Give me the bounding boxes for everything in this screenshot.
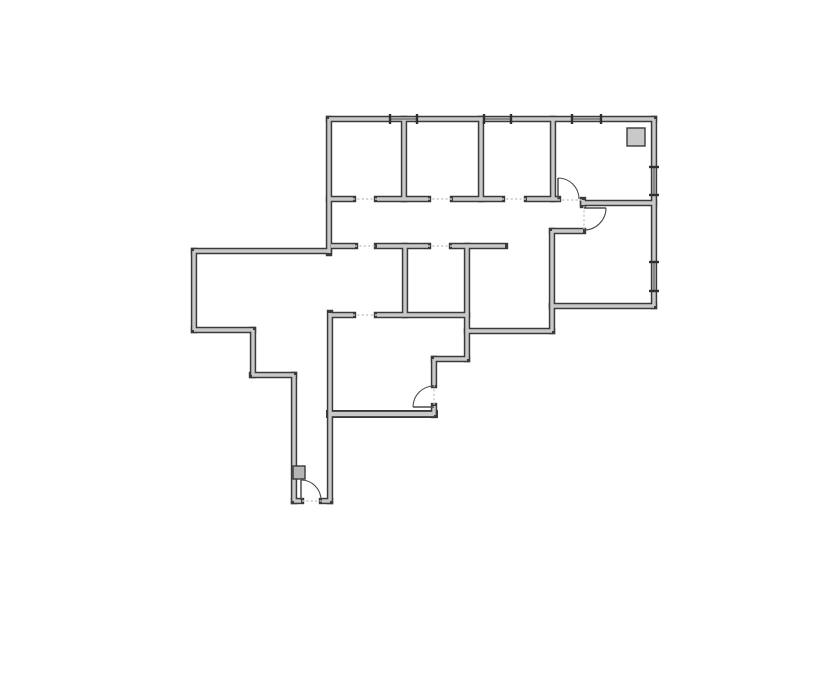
walls-core-layer: [194, 119, 654, 501]
doors-layer: [301, 178, 606, 500]
wall-mounted-panel: [293, 466, 305, 479]
floor-plan-page: [0, 0, 835, 678]
column-block: [627, 128, 645, 146]
door-big-right-room-swing-arc: [584, 208, 606, 230]
walls-outline-layer: [194, 119, 654, 501]
floor-plan-drawing: [0, 0, 835, 678]
door-suite-entry-swing-arc: [301, 480, 321, 500]
